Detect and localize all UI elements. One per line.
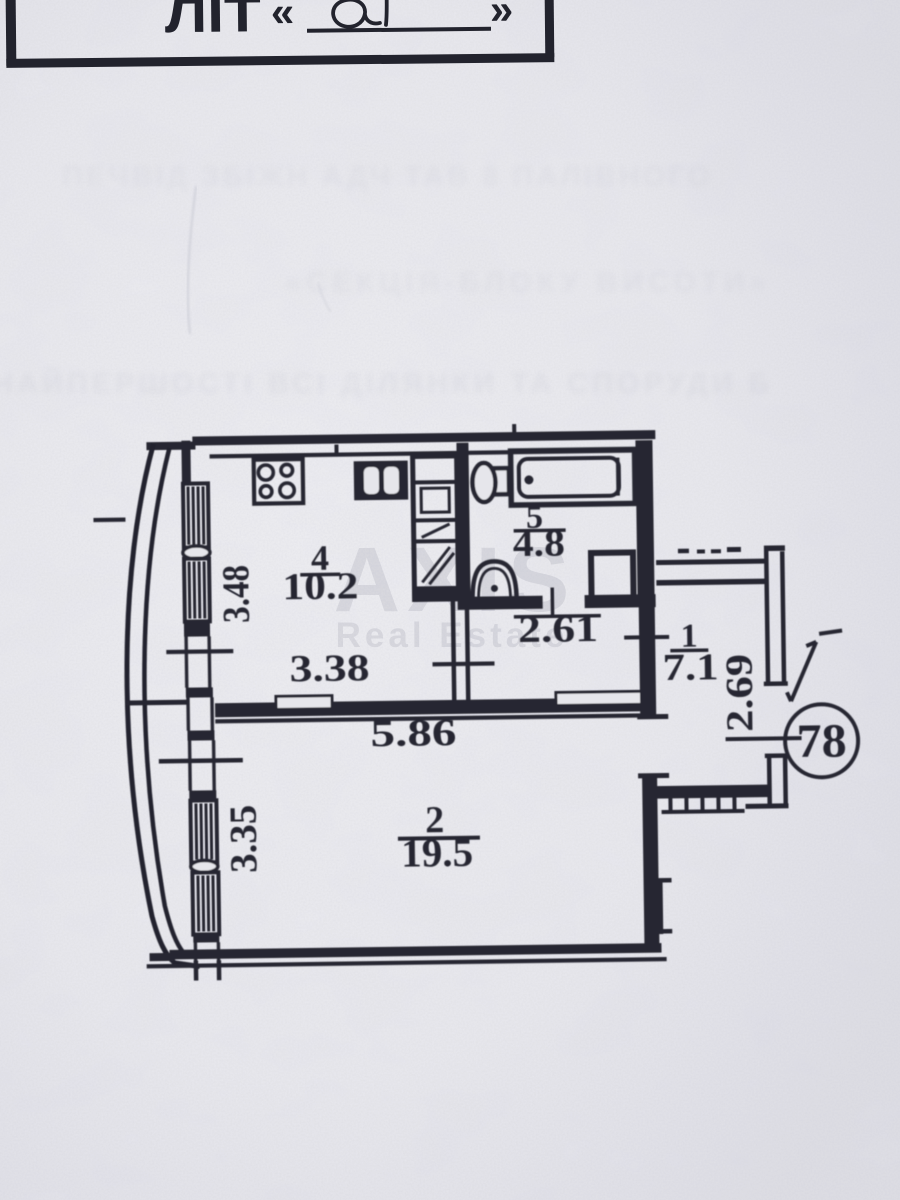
svg-text:»: » — [490, 0, 514, 33]
svg-text:7.1: 7.1 — [662, 646, 719, 689]
svg-text:«СЕКЦІЯ-БЛОКУ ВИСОТИ»: «СЕКЦІЯ-БЛОКУ ВИСОТИ» — [285, 267, 771, 299]
svg-text:2.61: 2.61 — [518, 608, 599, 651]
svg-text:3.48: 3.48 — [215, 565, 258, 624]
svg-text:НАЙПЕРШОСТІ ВСІ ДІЛЯНКИ ТА СПО: НАЙПЕРШОСТІ ВСІ ДІЛЯНКИ ТА СПОРУДИ Б — [0, 366, 774, 400]
svg-text:78: 78 — [796, 714, 847, 768]
svg-text:5.86: 5.86 — [370, 712, 457, 755]
svg-text:19.5: 19.5 — [401, 830, 474, 876]
svg-text:«: « — [271, 0, 295, 35]
svg-text:3.38: 3.38 — [289, 647, 370, 690]
svg-text:ЛІТ: ЛІТ — [165, 0, 262, 43]
svg-text:ПЕЧВІД ЗБІЖН АДЧ ТАВ 8 ПАЛІВНО: ПЕЧВІД ЗБІЖН АДЧ ТАВ 8 ПАЛІВНОГО — [62, 161, 713, 193]
svg-text:4.8: 4.8 — [513, 522, 566, 565]
svg-text:3.35: 3.35 — [222, 805, 265, 874]
svg-text:10.2: 10.2 — [282, 565, 359, 608]
svg-text:2.69: 2.69 — [718, 654, 761, 733]
